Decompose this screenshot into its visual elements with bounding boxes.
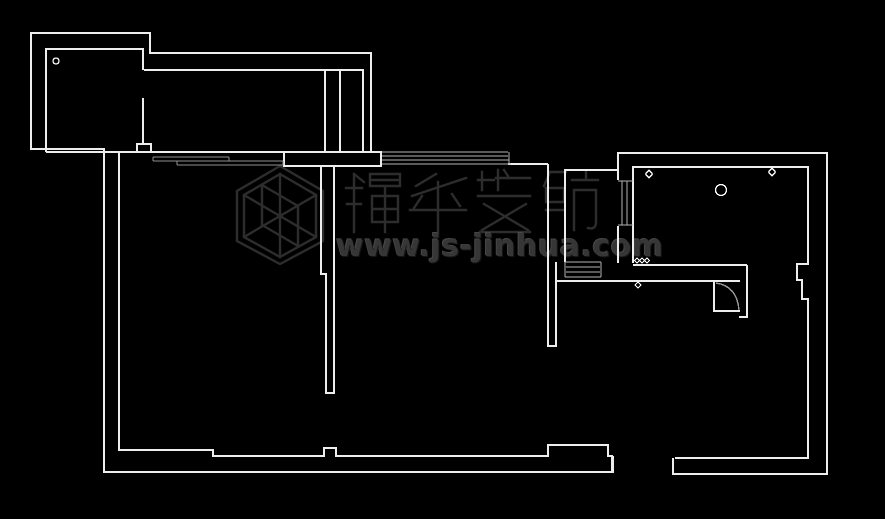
floorplan-drawing: [0, 0, 885, 519]
section-divider-niche: [565, 170, 617, 277]
door-diamond-marker: [635, 282, 641, 288]
triple-diamond-marker: [635, 258, 650, 263]
right-room-walls: [618, 153, 827, 474]
room-diamond-marker-right: [769, 168, 776, 176]
floorplan-canvas: www.js-jinhua.com: [0, 0, 885, 519]
lower-right-room-walls: [557, 265, 747, 318]
balcony-circle-marker: [53, 58, 59, 64]
room-circle-marker: [716, 185, 727, 196]
interior-partition-wall: [321, 167, 334, 393]
sliding-window: [153, 157, 283, 165]
plan-markers: [53, 58, 776, 288]
top-window: [382, 152, 511, 164]
right-room-side-window: [618, 181, 633, 225]
balcony-inner-walls: [46, 49, 382, 153]
room-diamond-marker-left: [646, 170, 653, 178]
wall-dot-marker: [558, 282, 561, 285]
